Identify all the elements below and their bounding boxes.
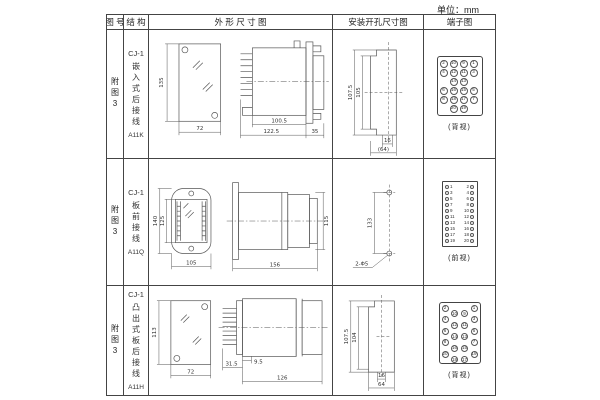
row3-outline-cell: 113 72 31.5 9.5 126 bbox=[149, 286, 333, 395]
header-terminal: 端子图 bbox=[424, 15, 495, 30]
side-view: 156 115 bbox=[227, 183, 330, 272]
dim-front-width: 72 bbox=[196, 126, 203, 132]
terminal-12: 12 bbox=[451, 322, 458, 329]
terminal-17: 17 bbox=[461, 356, 468, 363]
terminal-14: 14 bbox=[450, 78, 458, 86]
terminal-number: 7 bbox=[450, 203, 458, 208]
dim-body-len: 126 bbox=[277, 375, 288, 381]
row1-figure-no: 附图3 bbox=[110, 77, 121, 111]
terminal-4: 4 bbox=[440, 69, 448, 77]
terminal-number: 15 bbox=[450, 227, 458, 232]
terminal-circle bbox=[445, 209, 449, 213]
row1-outline-cell: 135 72 100.5 122.5 bbox=[149, 30, 333, 159]
terminal-number: 11 bbox=[450, 215, 458, 220]
row3-code: A11H bbox=[128, 384, 144, 391]
dim-front-outer-h: 140 bbox=[153, 215, 159, 226]
terminal-caption: (背视) bbox=[448, 370, 471, 380]
terminal-number: 17 bbox=[450, 233, 458, 238]
front-view: 140 125 105 bbox=[153, 189, 211, 270]
terminal-5: 5 bbox=[471, 328, 478, 335]
side-view: 31.5 9.5 126 bbox=[219, 299, 328, 385]
terminal-circle bbox=[445, 191, 449, 195]
spec-table: 图 号 结 构 外 形 尺 寸 图 安装开孔尺寸图 端子图 附图3 CJ-1 嵌… bbox=[106, 14, 496, 396]
dim-total-w: (64) bbox=[378, 147, 389, 153]
outline-drawing-a11h: 113 72 31.5 9.5 126 bbox=[149, 286, 332, 395]
row3-figure-cell: 附图3 bbox=[107, 286, 124, 395]
terminal-number: 19 bbox=[450, 239, 458, 244]
row1-model: CJ-1 bbox=[128, 49, 144, 58]
terminal-12: 12 bbox=[450, 69, 458, 77]
dim-inner-h: 104 bbox=[352, 332, 358, 343]
row2-figure-cell: 附图3 bbox=[107, 159, 124, 286]
row3-model: CJ-1 bbox=[128, 290, 144, 299]
terminal-7: 7 bbox=[470, 96, 478, 104]
terminal-15: 15 bbox=[461, 345, 468, 352]
terminal-circle bbox=[470, 209, 474, 213]
terminal-16: 16 bbox=[450, 87, 458, 95]
outline-drawing-a11k: 135 72 100.5 122.5 bbox=[149, 30, 332, 158]
terminal-number: 4 bbox=[461, 191, 469, 196]
terminal-16: 16 bbox=[451, 345, 458, 352]
terminal-circle bbox=[470, 233, 474, 237]
row2-terminal-cell: 1234567891011121314151617181920 (前视) bbox=[424, 159, 495, 286]
terminal-20: 20 bbox=[442, 351, 449, 358]
terminal-circle bbox=[445, 233, 449, 237]
dim-hole-spacing: 133 bbox=[368, 218, 374, 228]
terminal-box: 2110943121165141387161520191817 bbox=[439, 302, 481, 364]
row3-structure-desc: 凸出式板后接线 bbox=[131, 303, 142, 380]
terminal-number: 3 bbox=[450, 191, 458, 196]
row3-figure-no: 附图3 bbox=[110, 324, 121, 358]
dim-total-w: 64 bbox=[378, 382, 385, 388]
terminal-8: 8 bbox=[440, 96, 448, 104]
dim-gap: 9.5 bbox=[254, 359, 263, 365]
terminal-10: 10 bbox=[451, 310, 458, 317]
terminal-5: 5 bbox=[470, 87, 478, 95]
terminal-diagram-a11h: 2110943121165141387161520191817 (背视) bbox=[424, 286, 495, 395]
dim-front-inner-h: 125 bbox=[160, 216, 166, 226]
header-structure: 结 构 bbox=[124, 15, 149, 30]
row2-model: CJ-1 bbox=[128, 188, 144, 197]
terminal-15: 15 bbox=[460, 87, 468, 95]
document-page: 单位：mm 图 号 结 构 外 形 尺 寸 图 安装开孔尺寸图 端子图 附图3 … bbox=[0, 0, 600, 400]
terminal-9: 9 bbox=[460, 60, 468, 68]
terminal-circle bbox=[445, 239, 449, 243]
terminal-circle bbox=[470, 221, 474, 225]
terminal-19: 19 bbox=[460, 105, 468, 113]
terminal-8: 8 bbox=[442, 339, 449, 346]
row1-structure-desc: 嵌入式后接线 bbox=[131, 62, 142, 128]
dim-pin-len: 31.5 bbox=[225, 361, 237, 367]
terminal-circle bbox=[470, 191, 474, 195]
terminal-18: 18 bbox=[451, 356, 458, 363]
dim-side-height: 115 bbox=[324, 216, 330, 226]
dim-front-height: 113 bbox=[152, 327, 158, 338]
terminal-20: 20 bbox=[450, 105, 458, 113]
terminal-9: 9 bbox=[461, 310, 468, 317]
dim-inner-h: 105 bbox=[356, 87, 362, 97]
terminal-number: 6 bbox=[461, 197, 469, 202]
terminal-circle bbox=[470, 215, 474, 219]
terminal-3: 3 bbox=[470, 69, 478, 77]
row2-structure-desc: 板前接线 bbox=[131, 201, 142, 245]
terminal-10: 10 bbox=[450, 60, 458, 68]
dim-body-len: 100.5 bbox=[271, 118, 287, 124]
install-drawing-a11q: 133 2-Φ5 bbox=[333, 159, 423, 285]
row2-outline-cell: 140 125 105 156 115 bbox=[149, 159, 333, 286]
terminal-19: 19 bbox=[471, 351, 478, 358]
terminal-6: 6 bbox=[442, 328, 449, 335]
install-drawing-a11h: 107.5 104 16 64 bbox=[333, 286, 423, 395]
terminal-number: 9 bbox=[450, 209, 458, 214]
dim-front-width: 105 bbox=[186, 260, 196, 266]
row1-code: A11K bbox=[128, 132, 143, 139]
row3-install-cell: 107.5 104 16 64 bbox=[333, 286, 424, 395]
terminal-circle bbox=[445, 185, 449, 189]
terminal-box: 2109141211314136161558181772019 bbox=[437, 56, 483, 116]
terminal-7: 7 bbox=[471, 339, 478, 346]
terminal-2: 2 bbox=[442, 305, 449, 312]
terminal-11: 11 bbox=[460, 69, 468, 77]
terminal-circle bbox=[445, 203, 449, 207]
terminal-box: 1234567891011121314151617181920 bbox=[442, 181, 478, 247]
row1-install-cell: 107.5 105 16 (64) bbox=[333, 30, 424, 159]
header-install-dims: 安装开孔尺寸图 bbox=[333, 15, 424, 30]
header-outline-dims: 外 形 尺 寸 图 bbox=[149, 15, 333, 30]
terminal-11: 11 bbox=[461, 322, 468, 329]
terminal-circle bbox=[445, 221, 449, 225]
terminal-number: 10 bbox=[461, 209, 469, 214]
terminal-number: 2 bbox=[461, 185, 469, 190]
row3-structure-cell: CJ-1 凸出式板后接线 A11H bbox=[124, 286, 149, 395]
terminal-4: 4 bbox=[442, 316, 449, 323]
terminal-circle bbox=[470, 227, 474, 231]
row2-install-cell: 133 2-Φ5 bbox=[333, 159, 424, 286]
row3-terminal-cell: 2110943121165141387161520191817 (背视) bbox=[424, 286, 495, 395]
dim-flange: 35 bbox=[311, 129, 318, 135]
terminal-number: 20 bbox=[461, 239, 469, 244]
terminal-number: 18 bbox=[461, 233, 469, 238]
dim-slot-w: 16 bbox=[378, 373, 385, 379]
header-figure-no: 图 号 bbox=[107, 15, 124, 30]
terminal-number: 8 bbox=[461, 203, 469, 208]
dim-body-len: 156 bbox=[270, 262, 281, 268]
install-drawing-a11k: 107.5 105 16 (64) bbox=[333, 30, 423, 158]
terminal-17: 17 bbox=[460, 96, 468, 104]
terminal-circle bbox=[445, 215, 449, 219]
terminal-13: 13 bbox=[460, 78, 468, 86]
terminal-2: 2 bbox=[440, 60, 448, 68]
terminal-3: 3 bbox=[471, 316, 478, 323]
terminal-circle bbox=[470, 197, 474, 201]
terminal-circle bbox=[470, 203, 474, 207]
terminal-diagram-a11q: 1234567891011121314151617181920 (前视) bbox=[424, 159, 495, 285]
terminal-1: 1 bbox=[470, 60, 478, 68]
terminal-18: 18 bbox=[450, 96, 458, 104]
row2-code: A11Q bbox=[128, 249, 144, 256]
terminal-diagram-a11k: 2109141211314136161558181772019 (背视) bbox=[424, 30, 495, 158]
dim-slot-w: 16 bbox=[384, 138, 391, 144]
row1-terminal-cell: 2109141211314136161558181772019 (背视) bbox=[424, 30, 495, 159]
terminal-number: 16 bbox=[461, 227, 469, 232]
terminal-1: 1 bbox=[471, 305, 478, 312]
dim-total-len: 122.5 bbox=[263, 129, 279, 135]
terminal-number: 12 bbox=[461, 215, 469, 220]
row1-figure-cell: 附图3 bbox=[107, 30, 124, 159]
dim-outer-h: 107.5 bbox=[348, 85, 354, 101]
terminal-14: 14 bbox=[451, 333, 458, 340]
row2-figure-no: 附图3 bbox=[110, 205, 121, 239]
terminal-circle bbox=[445, 197, 449, 201]
row2-structure-cell: CJ-1 板前接线 A11Q bbox=[124, 159, 149, 286]
terminal-circle bbox=[470, 185, 474, 189]
terminal-6: 6 bbox=[440, 87, 448, 95]
dim-front-height: 135 bbox=[159, 77, 165, 87]
dim-outer-h: 107.5 bbox=[344, 329, 350, 345]
terminal-number: 1 bbox=[450, 185, 458, 190]
outline-drawing-a11q: 140 125 105 156 115 bbox=[149, 159, 332, 285]
terminal-circle bbox=[470, 239, 474, 243]
terminal-caption: (前视) bbox=[448, 253, 471, 263]
terminal-caption: (背视) bbox=[448, 122, 471, 132]
front-view: 135 72 bbox=[159, 44, 221, 135]
row1-structure-cell: CJ-1 嵌入式后接线 A11K bbox=[124, 30, 149, 159]
terminal-13: 13 bbox=[461, 333, 468, 340]
dim-front-width: 72 bbox=[187, 369, 194, 375]
dim-hole-label: 2-Φ5 bbox=[355, 261, 368, 267]
terminal-number: 5 bbox=[450, 197, 458, 202]
front-view: 113 72 bbox=[152, 301, 211, 379]
side-view: 100.5 122.5 35 bbox=[241, 41, 329, 138]
terminal-circle bbox=[445, 227, 449, 231]
terminal-number: 14 bbox=[461, 221, 469, 226]
terminal-number: 13 bbox=[450, 221, 458, 226]
